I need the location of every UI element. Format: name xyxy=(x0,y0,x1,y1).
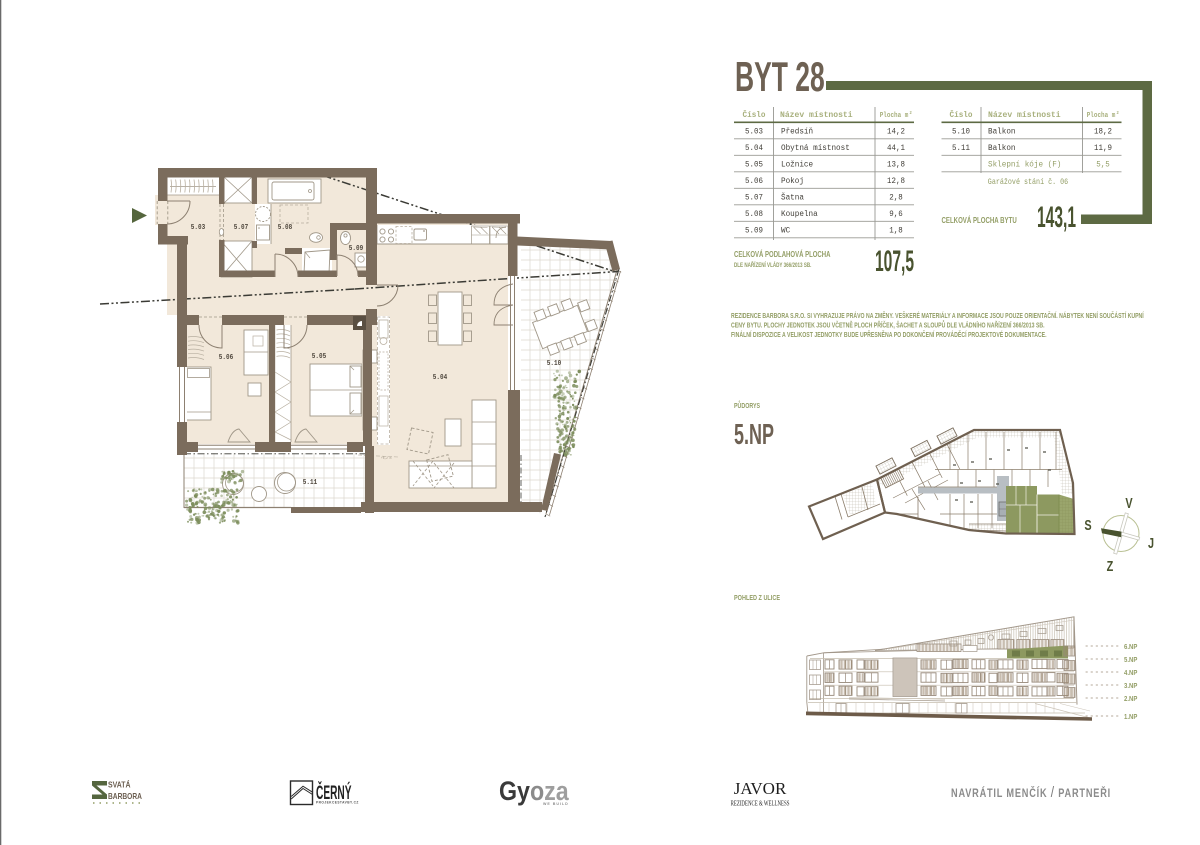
svg-text:4.NP: 4.NP xyxy=(1124,669,1138,677)
svg-text:WC: WC xyxy=(781,226,790,235)
svg-text:2.NP: 2.NP xyxy=(1124,695,1138,703)
svg-text:BARBORA: BARBORA xyxy=(108,791,142,801)
svg-text:5.09: 5.09 xyxy=(349,244,363,253)
svg-text:Balkon: Balkon xyxy=(988,127,1016,136)
svg-text:5.09: 5.09 xyxy=(745,226,763,236)
svg-text:5.06: 5.06 xyxy=(219,353,233,362)
svg-text:5.03: 5.03 xyxy=(745,127,763,137)
svg-text:143,1: 143,1 xyxy=(1037,201,1076,235)
svg-text:9,6: 9,6 xyxy=(889,210,903,220)
svg-text:JAVOR: JAVOR xyxy=(734,779,787,798)
svg-text:FINÁLNÍ DISPOZICE A VELIKOST J: FINÁLNÍ DISPOZICE A VELIKOST JEDNOTKY BU… xyxy=(731,329,1047,339)
svg-text:12,8: 12,8 xyxy=(887,177,905,187)
svg-text:5.NP: 5.NP xyxy=(734,419,774,451)
svg-text:DLE NAŘÍZENÍ VLÁDY 366/2013 SB: DLE NAŘÍZENÍ VLÁDY 366/2013 SB. xyxy=(734,260,812,269)
svg-text:Koupelna: Koupelna xyxy=(781,210,818,219)
svg-text:Pokoj: Pokoj xyxy=(781,177,804,186)
svg-text:6.NP: 6.NP xyxy=(1124,643,1138,651)
svg-text:Předsíň: Předsíň xyxy=(781,127,813,136)
svg-text:18,2: 18,2 xyxy=(1094,127,1112,137)
svg-text:Sklepní kóje (F): Sklepní kóje (F) xyxy=(988,160,1061,169)
svg-text:5.03: 5.03 xyxy=(191,223,205,232)
svg-text:POHLED Z ULICE: POHLED Z ULICE xyxy=(734,594,780,602)
svg-text:5.07: 5.07 xyxy=(234,223,248,232)
svg-text:2,8: 2,8 xyxy=(889,193,903,203)
svg-text:44,1: 44,1 xyxy=(887,144,905,154)
svg-text:5.10: 5.10 xyxy=(547,359,561,368)
svg-text:Plocha m: Plocha m xyxy=(1087,112,1116,120)
svg-text:Obytná místnost: Obytná místnost xyxy=(781,144,850,153)
svg-text:5.04: 5.04 xyxy=(745,144,763,154)
svg-text:Z: Z xyxy=(1107,557,1114,574)
svg-text:WE BUILD: WE BUILD xyxy=(543,802,569,806)
svg-text:5.11: 5.11 xyxy=(303,478,317,487)
svg-text:SVATÁ: SVATÁ xyxy=(108,780,131,790)
svg-text:5.04: 5.04 xyxy=(433,373,447,382)
svg-text:BYT 28: BYT 28 xyxy=(735,54,825,101)
svg-text:5.08: 5.08 xyxy=(745,210,763,220)
svg-text:5.05: 5.05 xyxy=(745,160,763,170)
svg-text:13,8: 13,8 xyxy=(887,160,905,170)
svg-text:14,2: 14,2 xyxy=(887,127,905,137)
svg-text:Číslo: Číslo xyxy=(743,110,766,121)
svg-text:1,8: 1,8 xyxy=(889,226,903,236)
svg-text:5.06: 5.06 xyxy=(745,177,763,187)
svg-text:PROJEKCESTAVBY.CZ: PROJEKCESTAVBY.CZ xyxy=(316,800,359,804)
svg-text:Číslo: Číslo xyxy=(950,110,973,121)
svg-text:Balkon: Balkon xyxy=(988,144,1016,153)
svg-text:5.11: 5.11 xyxy=(952,144,970,154)
svg-text:Název místnosti: Název místnosti xyxy=(780,110,853,120)
svg-text:PŮDORYS: PŮDORYS xyxy=(734,401,760,410)
svg-text:5.NP: 5.NP xyxy=(1124,656,1138,664)
svg-text:107,5: 107,5 xyxy=(875,245,914,279)
svg-text:3.NP: 3.NP xyxy=(1124,682,1138,690)
svg-text:5.05: 5.05 xyxy=(312,352,326,361)
svg-text:5,5: 5,5 xyxy=(1096,160,1110,170)
svg-text:5.07: 5.07 xyxy=(745,193,763,203)
svg-text:Plocha m: Plocha m xyxy=(880,112,909,120)
svg-text:S: S xyxy=(1084,516,1092,533)
svg-text:Garážové stání č. 06: Garážové stání č. 06 xyxy=(988,178,1069,187)
svg-text:5.08: 5.08 xyxy=(278,223,292,232)
svg-text:Šatna: Šatna xyxy=(781,192,804,203)
svg-text:Ložnice: Ložnice xyxy=(781,160,813,169)
svg-text:CELKOVÁ PODLAHOVÁ PLOCHA: CELKOVÁ PODLAHOVÁ PLOCHA xyxy=(734,249,831,259)
svg-text:11,9: 11,9 xyxy=(1094,144,1112,154)
svg-text:Název místnosti: Název místnosti xyxy=(988,110,1061,120)
svg-text:1.NP: 1.NP xyxy=(1124,713,1138,721)
svg-text:CELKOVÁ PLOCHA BYTU: CELKOVÁ PLOCHA BYTU xyxy=(942,215,1017,225)
svg-text:5.10: 5.10 xyxy=(952,127,970,137)
svg-text:V: V xyxy=(1125,494,1133,511)
svg-text:REZIDENCE BARBORA S.R.O. SI VY: REZIDENCE BARBORA S.R.O. SI VYHRAZUJE PR… xyxy=(731,310,1144,320)
svg-text:J: J xyxy=(1148,534,1154,551)
svg-text:REZIDENCE & WELLNESS: REZIDENCE & WELLNESS xyxy=(731,801,790,808)
